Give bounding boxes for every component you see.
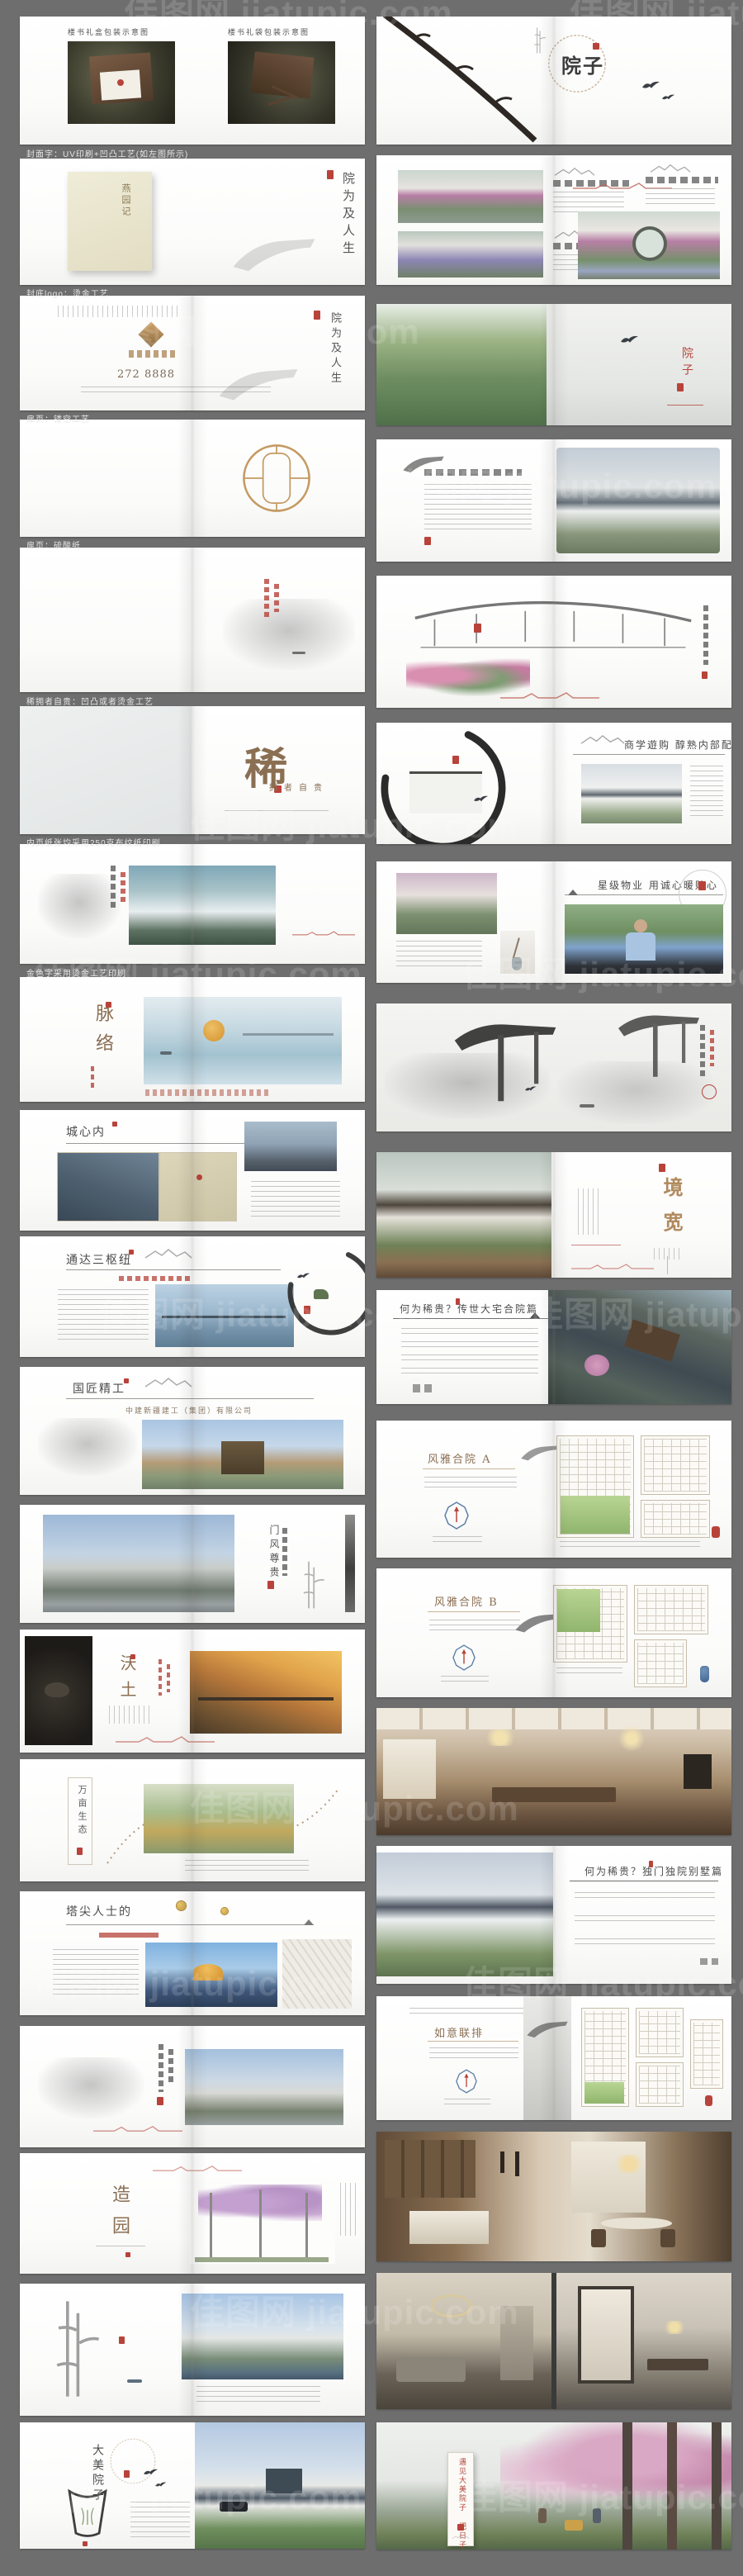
hotline: 272 8888 <box>117 368 175 381</box>
bullet-row <box>575 1892 715 1900</box>
panel-garden-making: 造园 <box>20 2153 365 2274</box>
panel-bamboo-courtyard <box>20 2284 365 2416</box>
ink-mountains <box>223 599 355 670</box>
panel-flyleaf-lattice <box>20 420 365 537</box>
lane-photo <box>43 1515 234 1612</box>
swallow-icon <box>525 1086 537 1092</box>
red-seal <box>267 1581 274 1589</box>
window-light <box>383 1739 436 1799</box>
person-shirt <box>626 932 655 961</box>
panel-cover-mockup: 燕园记 院为及人生 <box>20 159 365 285</box>
process-caption-flyleaf-vellum: 扉页：硫酸纸 <box>26 538 360 551</box>
living-room-photo <box>376 2273 551 2409</box>
wetland-photo <box>144 1784 294 1853</box>
panel-elite: 塔尖人士的 <box>20 1891 365 2015</box>
spread-corridor-ink <box>376 576 731 708</box>
red-mark <box>456 1298 460 1305</box>
gift-bag-caption: 楼书礼袋包装示意图 <box>228 26 310 37</box>
panel-slogan-xi: 稀 拥者自贵 <box>20 706 365 834</box>
dining-table <box>492 1787 616 1802</box>
wisteria-sketch <box>190 2178 335 2264</box>
chandelier <box>613 2155 646 2173</box>
panel-mountain-clouds <box>20 844 365 964</box>
plan-title: 风雅合院 A <box>428 1450 492 1466</box>
spread-house-render <box>376 439 731 562</box>
body-paragraph <box>53 1949 139 1999</box>
floor-plan <box>636 2062 684 2107</box>
bridge-deck <box>198 1697 334 1701</box>
red-vertical-title: 院子 <box>679 347 695 380</box>
swallow-icon <box>155 2482 167 2488</box>
section-title: 造园 <box>106 2185 132 2247</box>
section-title: 万亩生态 <box>75 1785 88 1838</box>
red-mark <box>649 1861 653 1867</box>
red-seal <box>702 671 708 679</box>
thin-rule <box>667 1256 668 1274</box>
process-caption-cover: 封面字：UV印刷+凹凸工艺(如左图所示) <box>26 147 360 159</box>
panel-ecology: 万亩生态 <box>20 1759 365 1881</box>
chair <box>660 2229 675 2247</box>
person <box>538 2508 547 2523</box>
floor-plan <box>641 1500 710 1538</box>
wood-cabinets <box>385 2140 476 2198</box>
bridge-line <box>243 1033 334 1036</box>
bamboo-ink <box>299 1559 332 1611</box>
courtyard-photo-2 <box>398 231 543 278</box>
red-seal <box>314 311 320 320</box>
bullet-row <box>575 1938 715 1947</box>
panel-transport-hubs: 通达三枢纽 <box>20 1236 365 1357</box>
compass-caption <box>444 2099 490 2105</box>
spread-heritage-courtyard: 何为稀贵？传世大宅合院篇 <box>376 1290 731 1404</box>
plan-labels <box>556 1668 622 1674</box>
panel-lane-mountains <box>20 2026 365 2147</box>
swallow-icon <box>297 1273 310 1279</box>
pergola-post <box>305 2193 308 2259</box>
red-mountain-line <box>92 2125 183 2132</box>
section-title: 沃土 <box>116 1654 140 1707</box>
floor-plan <box>581 2008 629 2107</box>
stairwell <box>500 2306 533 2380</box>
plan-labels <box>560 1541 700 1548</box>
panel-grand-courtyard: 大美院子 <box>20 2422 365 2549</box>
teapot <box>45 1682 69 1697</box>
wax-seal-accent <box>705 2095 712 2106</box>
pergola-post <box>712 2422 722 2550</box>
headline: 商学遊购 醇熟内部配套 <box>624 738 731 752</box>
gold-logo <box>138 321 163 347</box>
roof-ink-icon <box>525 2019 570 2041</box>
red-verse-column <box>274 584 279 612</box>
boat-sketch <box>127 2379 142 2383</box>
spread-living-interiors <box>376 2273 731 2409</box>
red-seal <box>112 1122 117 1127</box>
process-caption-paper: 内页纸张均采用250克布纹纸印刷 <box>26 836 360 848</box>
frontcover-calligraphy: 院为及人生 <box>327 312 343 387</box>
body-paragraph <box>424 484 532 530</box>
spread-floorplan-a: 风雅合院 A <box>376 1421 731 1558</box>
dining-hall-photo <box>556 2273 731 2409</box>
verse-column <box>703 605 708 665</box>
white-wall-photo <box>547 304 731 425</box>
english-subline <box>96 2246 145 2249</box>
handwriting-mark <box>700 1958 718 1965</box>
body-paragraph <box>185 1860 309 1875</box>
spread-cover-yuanzi: 院子 <box>376 17 731 145</box>
mountain-icon <box>553 167 596 177</box>
red-subtitle <box>119 1276 193 1281</box>
roof-sketch <box>190 365 327 406</box>
red-seal <box>106 1002 111 1008</box>
floor-plan <box>641 1435 710 1495</box>
vase-branch-photo <box>500 931 535 974</box>
swallow-icon <box>621 335 639 344</box>
rattan-photo <box>282 1939 352 2009</box>
ink-brush-stripe <box>345 1515 355 1612</box>
title-box: 万亩生态 <box>68 1777 92 1865</box>
intro-micro-columns <box>578 1188 603 1235</box>
aerial-photo <box>58 1153 159 1221</box>
blue-vase-accent <box>700 1666 709 1682</box>
service-staff-photo <box>565 904 723 974</box>
red-seal <box>698 881 706 890</box>
corridor-ink-drawing <box>390 597 717 660</box>
roof-ink-icon <box>518 1444 561 1464</box>
floor-plan <box>690 2019 723 2089</box>
panel-mailuo: 脉络 <box>20 977 365 1102</box>
panel-city-heart: 城心内 <box>20 1110 365 1231</box>
bridge-photo <box>155 1284 294 1347</box>
ink-wall-strip <box>523 1996 571 2120</box>
spread-dining-interior <box>376 1708 731 1835</box>
dining-table <box>601 2218 672 2229</box>
aerial-villa-photo <box>548 1290 731 1404</box>
chair <box>591 2229 606 2247</box>
pergola-post <box>667 2422 677 2550</box>
red-seal <box>474 624 481 633</box>
caption-paragraph <box>196 2386 320 2403</box>
builder-subtitle: 中建新疆建工（集团）有限公司 <box>125 1405 253 1416</box>
ring-pendant <box>431 2294 472 2317</box>
pergola-post <box>622 2422 632 2550</box>
body-paragraph <box>251 1181 340 1221</box>
chandelier <box>662 2321 687 2334</box>
gold-coin <box>221 1908 228 1914</box>
red-verse-column <box>710 1030 714 1066</box>
pendant-light <box>515 2151 519 2176</box>
sofa <box>396 2357 466 2382</box>
process-caption-backcover: 封底logo：烫金工艺 <box>26 287 360 299</box>
section-title: 脉络 <box>89 1003 116 1063</box>
bonsai <box>314 1289 329 1299</box>
gift-bag-photo <box>228 41 335 124</box>
mountain-icon <box>580 734 626 745</box>
red-mountain-line <box>116 1735 215 1743</box>
courtyard-photo-1 <box>398 170 543 223</box>
red-caption-row <box>145 1089 269 1096</box>
book-cover-photo: 燕园记 <box>68 172 152 271</box>
process-caption-slogan-page: 稀拥者自贵：凹凸或者烫金工艺 <box>26 695 360 707</box>
swallow-icon <box>474 795 489 803</box>
slogan-text: 拥者自贵 <box>269 780 329 793</box>
bullet-row <box>401 1341 538 1348</box>
body-paragraph <box>690 766 723 820</box>
red-seal <box>157 2097 163 2105</box>
brand-mark <box>117 79 124 86</box>
bullet-row <box>401 1328 538 1335</box>
swallow-icon <box>642 81 660 90</box>
mountain-icon <box>649 164 692 173</box>
floor-plan <box>634 1585 708 1634</box>
headline: 何为稀贵？独门独院别墅篇 <box>584 1864 723 1878</box>
gate-tower <box>221 1441 264 1474</box>
mountain-icon <box>144 1377 193 1388</box>
swallow-icon <box>144 2469 159 2476</box>
red-seal <box>452 756 459 764</box>
red-verse-column <box>121 872 125 902</box>
horsehead-wall <box>409 774 482 814</box>
headline-script <box>424 469 522 476</box>
handwriting-mark <box>413 1384 434 1392</box>
rockery-photo <box>182 2294 343 2379</box>
compass-icon <box>456 2069 477 2094</box>
red-mountain-line <box>292 930 355 937</box>
body-paragraph <box>396 941 482 969</box>
plan-title: 如意联排 <box>434 2024 484 2040</box>
window-curtains <box>571 2142 646 2213</box>
red-seal <box>129 1250 134 1255</box>
mountain-icon <box>144 1248 193 1260</box>
red-subline <box>91 1066 94 1091</box>
logo-name <box>129 350 175 358</box>
bamboo-ink <box>50 2297 112 2401</box>
vertical-phrase: 门风尊贵 <box>267 1525 282 1581</box>
ink-mountains <box>38 1418 137 1476</box>
panel-backcover-layout: 272 8888 院为及人生 <box>20 296 365 410</box>
gold-dome <box>203 1020 225 1041</box>
villa-photo <box>195 2422 365 2549</box>
body-paragraph <box>646 188 715 208</box>
process-caption-gold-text: 金色字采用烫金工艺印刷 <box>26 966 360 979</box>
red-verse-column <box>264 579 269 617</box>
floor-plan <box>636 2008 684 2057</box>
bamboo-sprig <box>530 26 551 55</box>
red-seal <box>124 2470 130 2478</box>
boat-sketch <box>580 1104 594 1108</box>
moon-gate-photo <box>578 211 720 279</box>
spread-jingkuan: 境宽 <box>376 1152 731 1278</box>
section-title: 塔尖人士的 <box>66 1903 132 1919</box>
location-map <box>160 1153 236 1221</box>
map-marker <box>196 1174 202 1180</box>
lotus-dome <box>193 1964 223 1981</box>
red-seal <box>327 170 334 179</box>
panel-streetscape: 门风尊贵 <box>20 1505 365 1623</box>
courtyard-table-photo <box>376 1152 551 1278</box>
ink-mountains <box>38 2057 144 2118</box>
red-seal <box>119 2336 125 2344</box>
plan-title: 风雅合院 B <box>434 1593 499 1609</box>
street-photo <box>244 1122 337 1171</box>
red-seal <box>83 2541 88 2546</box>
tv-panel <box>684 1754 712 1789</box>
red-stamp-circle <box>702 1084 717 1099</box>
panel-fertile-land: 沃土 <box>20 1630 365 1753</box>
spread-floorplan-b: 风雅合院 B <box>376 1568 731 1697</box>
left-blank-page <box>20 706 192 834</box>
kitchen-island <box>409 2211 489 2244</box>
building-photo <box>581 764 682 823</box>
red-seal <box>124 1378 129 1383</box>
lotus-building-photo <box>145 1943 277 2007</box>
book-cover-title: 燕园记 <box>119 183 132 218</box>
verse-column <box>168 2049 173 2085</box>
compass-icon <box>444 1501 469 1530</box>
headline: 何为稀贵？传世大宅合院篇 <box>400 1302 538 1316</box>
gift-bag-ribbon <box>267 95 295 106</box>
intro-paragraph <box>409 2008 525 2016</box>
person-head <box>634 919 647 932</box>
teapot-photo <box>25 1636 92 1745</box>
branch-pen <box>376 17 553 145</box>
plan-description <box>424 1477 517 1492</box>
subtitle-micro <box>654 1248 682 1260</box>
panel-packaging-mockups: 楼书礼盒包装示意图 楼书礼袋包装示意图 <box>20 17 365 145</box>
pergola-post <box>210 2193 212 2259</box>
quote-columns <box>340 2183 357 2236</box>
spread-property-service: 星级物业 用诚心暖贴心 <box>376 861 731 983</box>
pink-blossom-tree <box>500 2422 731 2505</box>
verse-column <box>700 1025 705 1076</box>
cover-title: 院子 <box>561 50 604 78</box>
body-paragraph <box>130 2502 190 2538</box>
gate-photo <box>142 1420 343 1489</box>
spread-kitchen-interior <box>376 2132 731 2261</box>
boat <box>160 1051 172 1055</box>
red-mountain-line <box>144 2165 251 2172</box>
chandelier <box>618 1726 646 1751</box>
compass-caption <box>441 1676 489 1682</box>
arch-pavilion-ink <box>613 1010 705 1081</box>
panel-flyleaf-vellum <box>20 548 365 692</box>
roof-sketch <box>208 235 340 278</box>
courtyard-lane-photo <box>185 2049 343 2125</box>
lattice-window-icon <box>241 443 312 514</box>
render-photo <box>556 448 720 553</box>
backcover-index-row <box>58 306 182 317</box>
pergola-post <box>259 2189 262 2259</box>
verse-column <box>282 1528 287 1576</box>
spread-blossom-courtyard: 遇见大美院子 把日子过成诗 <box>376 2422 731 2550</box>
vase <box>512 957 522 970</box>
red-seal <box>77 1848 83 1855</box>
compass-caption <box>433 1536 482 1543</box>
spread-detached-villa: 何为稀贵？独门独院别墅篇 <box>376 1846 731 1984</box>
sunset-bridge-photo <box>190 1651 342 1734</box>
red-seal <box>677 383 684 391</box>
red-quote-column <box>167 1664 170 1692</box>
template-preview-board: 佳图网 jiatupic.com 佳图网 jiatupic.com 佳图网 ji… <box>0 0 743 2576</box>
red-seal <box>659 1164 665 1172</box>
fan-ink-painting <box>66 2488 109 2540</box>
bridge-deck <box>162 1316 286 1318</box>
moon-gate <box>636 230 664 258</box>
bullet-row <box>401 1354 538 1361</box>
red-seal <box>593 43 599 50</box>
panel-master-craft: 国匠精工 中建新疆建工（集团）有限公司 <box>20 1367 365 1495</box>
body-paragraph <box>58 1289 149 1340</box>
red-subtitle <box>99 1933 159 1938</box>
spread-townhouse-plan: 如意联排 <box>376 1996 731 2120</box>
english-subline <box>225 810 329 814</box>
gate-roof <box>266 2469 302 2493</box>
watercolor-lake-photo <box>144 997 342 1084</box>
red-seal <box>130 1654 135 1659</box>
section-title: 国匠精工 <box>73 1380 125 1397</box>
headline-script <box>646 177 718 183</box>
red-mountain-line <box>571 1263 654 1270</box>
car <box>220 2502 248 2512</box>
blossom-wall-photo <box>396 873 497 934</box>
pendant-light <box>500 2151 504 2173</box>
villa-photo <box>376 1853 553 1976</box>
bullet-row <box>575 1915 715 1924</box>
spread-ink-landscape <box>376 1003 731 1131</box>
verse-column <box>111 866 116 908</box>
garden-base <box>195 2257 329 2262</box>
plan-description <box>429 2047 518 2061</box>
spread-courtyard-gallery <box>376 155 731 285</box>
cloud-mark <box>452 2534 470 2540</box>
spread-amenities: 商学遊购 醇熟内部配套 <box>376 723 731 844</box>
floor-plan <box>634 1639 687 1687</box>
wax-seal-accent <box>712 1526 720 1538</box>
plaque: 遇见大美院子 把日子过成诗 <box>447 2452 474 2546</box>
process-caption-flyleaf-cutout: 扉页：镂空工艺 <box>26 412 360 425</box>
floor-plan <box>553 1585 627 1663</box>
pink-tree <box>584 1354 609 1376</box>
bullet-row <box>401 1368 538 1374</box>
red-wave-line <box>426 691 674 700</box>
dining-table <box>647 2359 708 2370</box>
gift-box-photo <box>68 41 175 124</box>
red-quote-column <box>159 1659 162 1696</box>
person <box>593 2508 601 2523</box>
roof <box>624 1320 680 1362</box>
subtitle-micro <box>109 1705 152 1724</box>
cover-calligraphy: 院为及人生 <box>340 172 357 259</box>
ink-blob <box>38 874 121 938</box>
chandelier <box>482 1729 518 1746</box>
floor-plan <box>556 1435 634 1538</box>
garden-trees-photo <box>376 304 547 425</box>
mountain-cloud-photo <box>129 866 276 945</box>
red-seal <box>304 1306 310 1314</box>
spread-trees-wall: 院子 <box>376 304 731 425</box>
fire-pit <box>565 2520 583 2531</box>
red-seal <box>125 2252 130 2257</box>
swallow-icon <box>662 94 675 101</box>
plan-description <box>429 1620 520 1633</box>
verse-column <box>159 2044 163 2092</box>
compass-icon <box>452 1644 476 1671</box>
gift-box-caption: 楼书礼盒包装示意图 <box>68 26 149 37</box>
section-title: 通达三枢纽 <box>66 1251 132 1268</box>
coffered-ceiling <box>376 1708 731 1729</box>
gold-coin <box>177 1901 186 1910</box>
section-title: 境宽 <box>657 1177 686 1246</box>
ring-ornament <box>109 2437 157 2485</box>
